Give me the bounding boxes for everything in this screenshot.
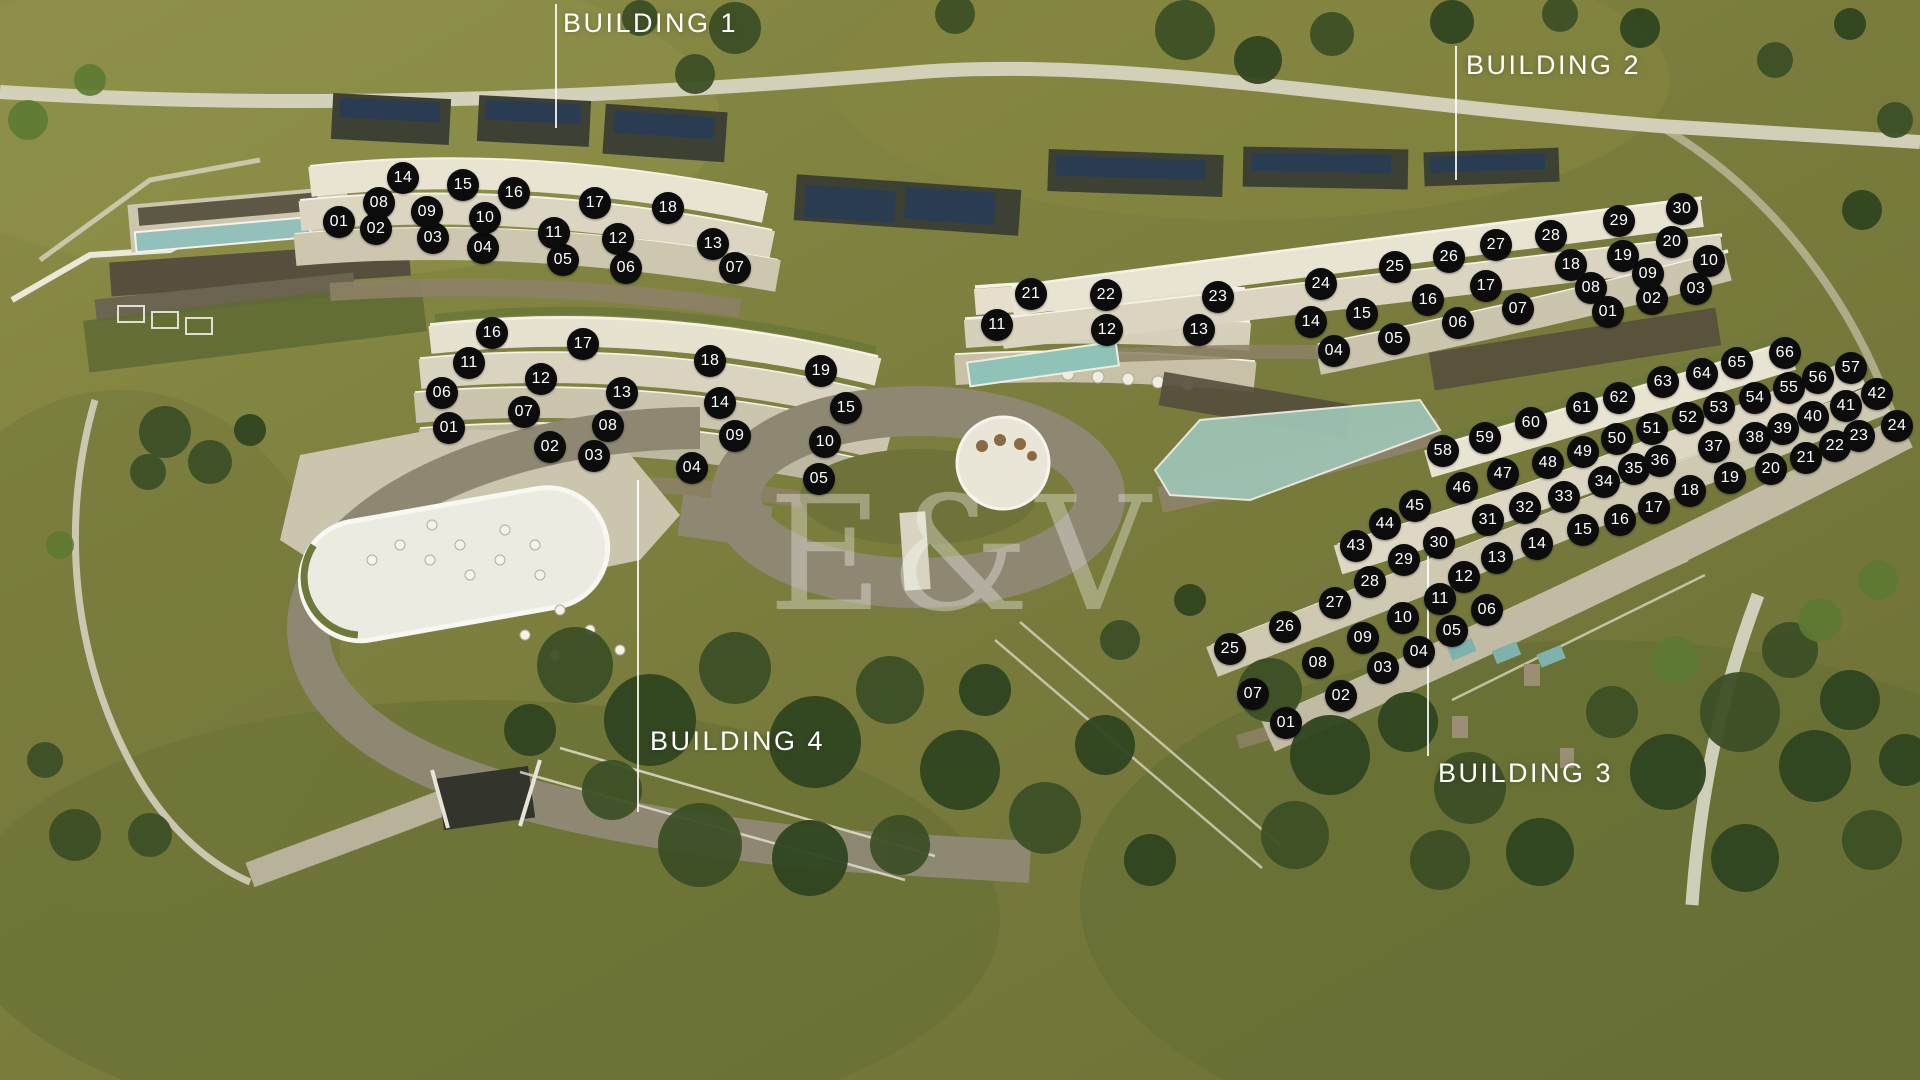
- building-3-unit-16[interactable]: 16: [1604, 504, 1636, 536]
- building-3-unit-23[interactable]: 23: [1843, 420, 1875, 452]
- building-4-leader-line: [637, 480, 639, 812]
- building-3-unit-34[interactable]: 34: [1588, 466, 1620, 498]
- building-3-unit-50[interactable]: 50: [1601, 423, 1633, 455]
- building-2-unit-20[interactable]: 20: [1656, 226, 1688, 258]
- building-3-unit-60[interactable]: 60: [1515, 407, 1547, 439]
- building-3-unit-30[interactable]: 30: [1423, 527, 1455, 559]
- building-1-unit-09[interactable]: 09: [411, 196, 443, 228]
- building-3-unit-47[interactable]: 47: [1487, 458, 1519, 490]
- building-3-unit-48[interactable]: 48: [1532, 447, 1564, 479]
- building-3-unit-63[interactable]: 63: [1647, 366, 1679, 398]
- building-3-unit-25[interactable]: 25: [1214, 633, 1246, 665]
- building-2-unit-15[interactable]: 15: [1346, 298, 1378, 330]
- building-3-unit-36[interactable]: 36: [1644, 445, 1676, 477]
- building-2-unit-12[interactable]: 12: [1091, 314, 1123, 346]
- building-3-unit-31[interactable]: 31: [1472, 504, 1504, 536]
- building-2-unit-03[interactable]: 03: [1680, 273, 1712, 305]
- building-3-unit-07[interactable]: 07: [1237, 678, 1269, 710]
- building-4-unit-14[interactable]: 14: [704, 387, 736, 419]
- building-3-unit-61[interactable]: 61: [1566, 392, 1598, 424]
- building-3-unit-32[interactable]: 32: [1509, 492, 1541, 524]
- building-3-unit-24[interactable]: 24: [1881, 410, 1913, 442]
- building-1-unit-10[interactable]: 10: [469, 202, 501, 234]
- building-3-unit-10[interactable]: 10: [1387, 602, 1419, 634]
- building-1-unit-04[interactable]: 04: [467, 232, 499, 264]
- building-1-unit-07[interactable]: 07: [719, 252, 751, 284]
- building-3-unit-37[interactable]: 37: [1698, 431, 1730, 463]
- building-2-unit-17[interactable]: 17: [1470, 270, 1502, 302]
- building-4-unit-19[interactable]: 19: [805, 355, 837, 387]
- building-3-unit-04[interactable]: 04: [1403, 636, 1435, 668]
- building-3-unit-28[interactable]: 28: [1354, 566, 1386, 598]
- building-3-unit-53[interactable]: 53: [1703, 392, 1735, 424]
- building-4-unit-18[interactable]: 18: [694, 345, 726, 377]
- building-3-unit-14[interactable]: 14: [1521, 528, 1553, 560]
- building-3-unit-65[interactable]: 65: [1721, 347, 1753, 379]
- building-2-label: BUILDING 2: [1466, 50, 1641, 81]
- building-3-unit-44[interactable]: 44: [1369, 508, 1401, 540]
- building-3-unit-01[interactable]: 01: [1270, 707, 1302, 739]
- building-4-unit-10[interactable]: 10: [809, 426, 841, 458]
- building-3-unit-02[interactable]: 02: [1325, 680, 1357, 712]
- building-1-leader-line: [555, 4, 557, 128]
- building-3-unit-17[interactable]: 17: [1638, 492, 1670, 524]
- building-2-unit-06[interactable]: 06: [1442, 307, 1474, 339]
- building-2-unit-05[interactable]: 05: [1378, 323, 1410, 355]
- building-3-unit-11[interactable]: 11: [1424, 583, 1456, 615]
- building-4-unit-08[interactable]: 08: [592, 410, 624, 442]
- building-3-unit-13[interactable]: 13: [1481, 542, 1513, 574]
- building-3-unit-56[interactable]: 56: [1802, 362, 1834, 394]
- building-2-unit-23[interactable]: 23: [1202, 281, 1234, 313]
- building-3-unit-54[interactable]: 54: [1739, 382, 1771, 414]
- building-3-unit-64[interactable]: 64: [1686, 358, 1718, 390]
- building-2-unit-18[interactable]: 18: [1555, 249, 1587, 281]
- building-3-unit-59[interactable]: 59: [1469, 422, 1501, 454]
- building-3-unit-08[interactable]: 08: [1302, 647, 1334, 679]
- building-1-unit-18[interactable]: 18: [652, 192, 684, 224]
- building-1-unit-17[interactable]: 17: [579, 187, 611, 219]
- building-4-unit-13[interactable]: 13: [606, 377, 638, 409]
- building-3-unit-42[interactable]: 42: [1861, 378, 1893, 410]
- building-4-unit-05[interactable]: 05: [803, 463, 835, 495]
- building-4-unit-12[interactable]: 12: [525, 363, 557, 395]
- building-4-unit-11[interactable]: 11: [453, 347, 485, 379]
- building-3-unit-51[interactable]: 51: [1636, 413, 1668, 445]
- site-render: [0, 0, 1920, 1080]
- building-4-unit-01[interactable]: 01: [433, 412, 465, 444]
- building-2-unit-28[interactable]: 28: [1535, 220, 1567, 252]
- building-2-unit-21[interactable]: 21: [1015, 278, 1047, 310]
- building-3-unit-29[interactable]: 29: [1388, 544, 1420, 576]
- building-3-unit-55[interactable]: 55: [1773, 372, 1805, 404]
- building-3-unit-03[interactable]: 03: [1367, 652, 1399, 684]
- building-2-unit-30[interactable]: 30: [1666, 193, 1698, 225]
- building-4-label: BUILDING 4: [650, 726, 825, 757]
- building-3-unit-45[interactable]: 45: [1399, 490, 1431, 522]
- building-3-unit-41[interactable]: 41: [1830, 390, 1862, 422]
- building-2-unit-24[interactable]: 24: [1305, 268, 1337, 300]
- building-1-label: BUILDING 1: [563, 8, 738, 39]
- building-4-unit-02[interactable]: 02: [534, 431, 566, 463]
- building-2-unit-22[interactable]: 22: [1090, 279, 1122, 311]
- building-3-unit-66[interactable]: 66: [1769, 337, 1801, 369]
- building-2-unit-07[interactable]: 07: [1502, 293, 1534, 325]
- building-1-unit-12[interactable]: 12: [602, 223, 634, 255]
- building-1-unit-15[interactable]: 15: [447, 169, 479, 201]
- building-3-unit-20[interactable]: 20: [1755, 453, 1787, 485]
- building-3-unit-49[interactable]: 49: [1567, 436, 1599, 468]
- building-3-unit-15[interactable]: 15: [1567, 514, 1599, 546]
- building-4-unit-04[interactable]: 04: [676, 452, 708, 484]
- building-4-unit-07[interactable]: 07: [508, 396, 540, 428]
- building-3-unit-57[interactable]: 57: [1835, 352, 1867, 384]
- building-3-unit-33[interactable]: 33: [1548, 481, 1580, 513]
- building-4-unit-15[interactable]: 15: [830, 392, 862, 424]
- building-4-unit-03[interactable]: 03: [578, 440, 610, 472]
- building-3-unit-06[interactable]: 06: [1471, 594, 1503, 626]
- building-3-unit-19[interactable]: 19: [1714, 462, 1746, 494]
- building-2-unit-29[interactable]: 29: [1603, 205, 1635, 237]
- building-3-unit-18[interactable]: 18: [1674, 475, 1706, 507]
- building-2-unit-11[interactable]: 11: [981, 309, 1013, 341]
- building-4-unit-06[interactable]: 06: [426, 377, 458, 409]
- building-3-label: BUILDING 3: [1438, 758, 1613, 789]
- building-1-unit-16[interactable]: 16: [498, 177, 530, 209]
- building-2-unit-26[interactable]: 26: [1433, 241, 1465, 273]
- building-4-unit-09[interactable]: 09: [719, 420, 751, 452]
- building-2-unit-10[interactable]: 10: [1693, 245, 1725, 277]
- building-2-unit-25[interactable]: 25: [1379, 251, 1411, 283]
- building-3-unit-12[interactable]: 12: [1448, 561, 1480, 593]
- building-2-unit-16[interactable]: 16: [1412, 284, 1444, 316]
- building-3-unit-21[interactable]: 21: [1790, 442, 1822, 474]
- masterplan-view: E&V 010203040506070809101112131415161718…: [0, 0, 1920, 1080]
- building-4-unit-17[interactable]: 17: [567, 328, 599, 360]
- building-2-unit-19[interactable]: 19: [1607, 240, 1639, 272]
- building-3-unit-27[interactable]: 27: [1319, 587, 1351, 619]
- building-1-unit-08[interactable]: 08: [363, 187, 395, 219]
- building-2-unit-27[interactable]: 27: [1480, 229, 1512, 261]
- building-4-unit-16[interactable]: 16: [476, 317, 508, 349]
- building-3-unit-58[interactable]: 58: [1427, 435, 1459, 467]
- building-3-unit-43[interactable]: 43: [1340, 530, 1372, 562]
- building-3-unit-40[interactable]: 40: [1797, 401, 1829, 433]
- building-3-unit-09[interactable]: 09: [1347, 622, 1379, 654]
- building-3-unit-26[interactable]: 26: [1269, 611, 1301, 643]
- building-3-unit-39[interactable]: 39: [1767, 413, 1799, 445]
- building-1-unit-06[interactable]: 06: [610, 252, 642, 284]
- building-3-unit-05[interactable]: 05: [1436, 615, 1468, 647]
- building-2-unit-14[interactable]: 14: [1295, 306, 1327, 338]
- building-2-unit-04[interactable]: 04: [1318, 335, 1350, 367]
- building-1-unit-11[interactable]: 11: [538, 217, 570, 249]
- building-2-unit-13[interactable]: 13: [1183, 314, 1215, 346]
- building-3-unit-46[interactable]: 46: [1446, 472, 1478, 504]
- building-1-unit-13[interactable]: 13: [697, 228, 729, 260]
- building-1-unit-14[interactable]: 14: [387, 162, 419, 194]
- building-3-unit-62[interactable]: 62: [1603, 382, 1635, 414]
- building-1-unit-01[interactable]: 01: [323, 206, 355, 238]
- building-3-unit-52[interactable]: 52: [1672, 402, 1704, 434]
- building-2-leader-line: [1455, 46, 1457, 180]
